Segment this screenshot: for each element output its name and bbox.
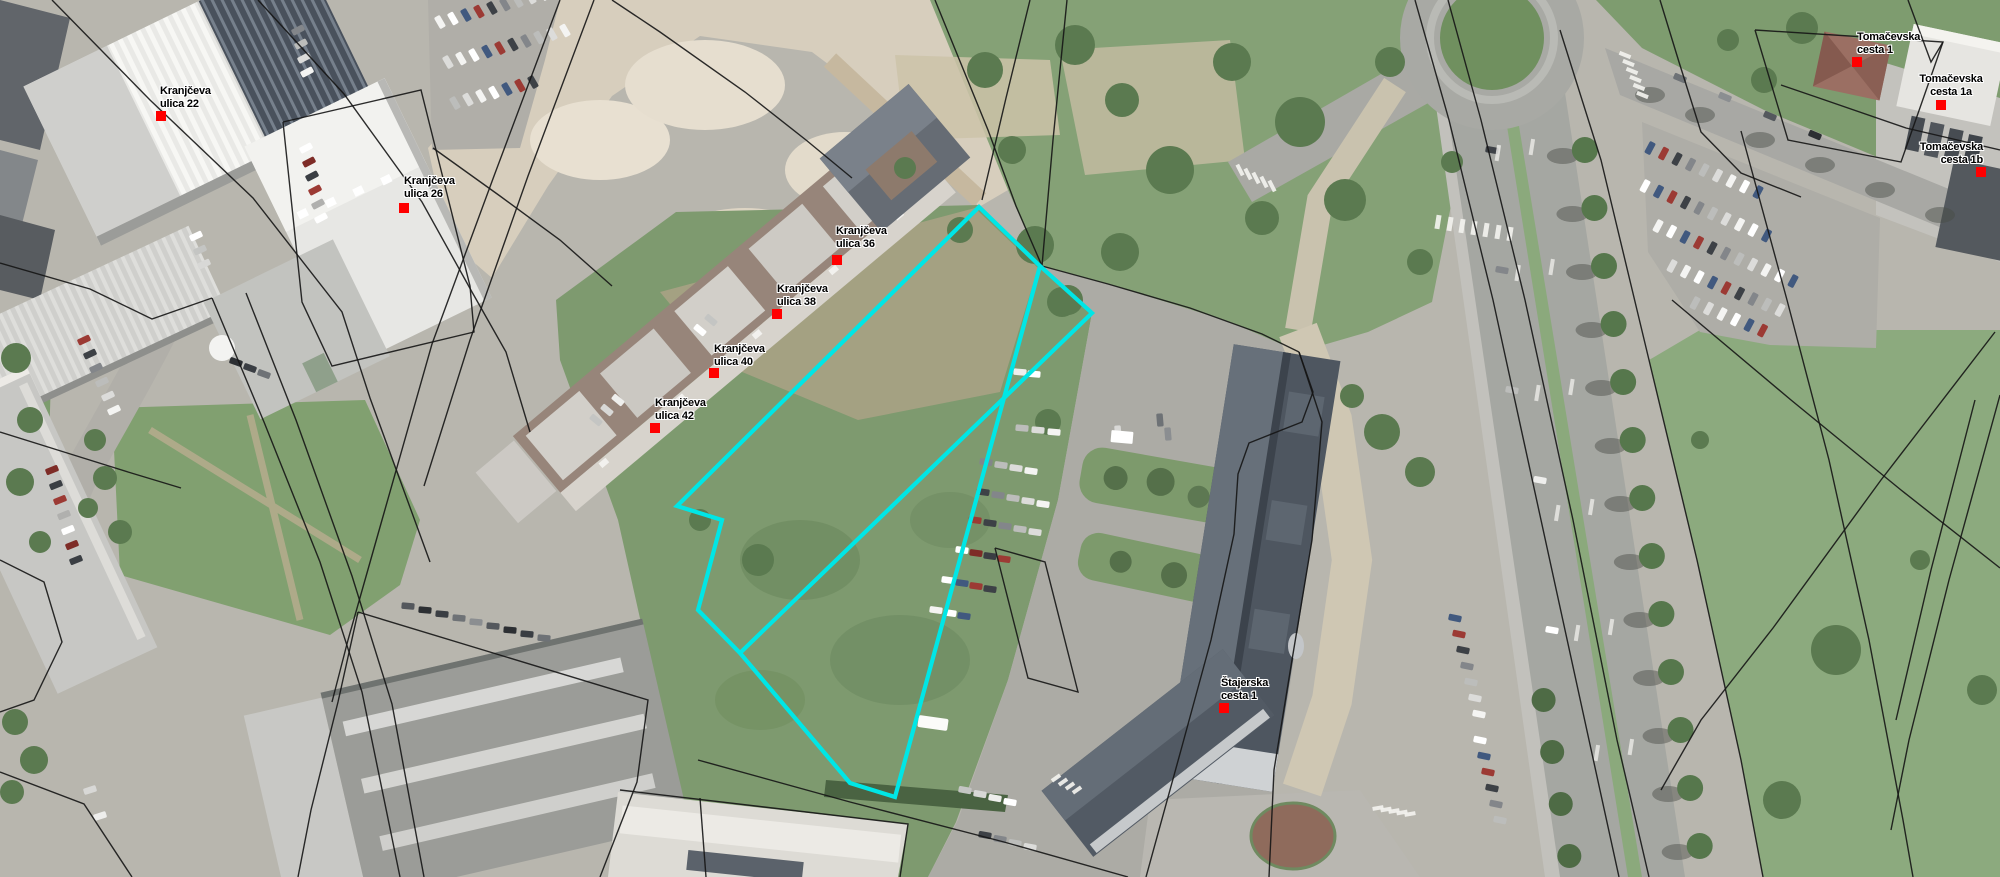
aerial-imagery <box>0 0 2000 877</box>
map-viewport[interactable]: Kranjčevaulica 22Kranjčevaulica 26Kranjč… <box>0 0 2000 877</box>
